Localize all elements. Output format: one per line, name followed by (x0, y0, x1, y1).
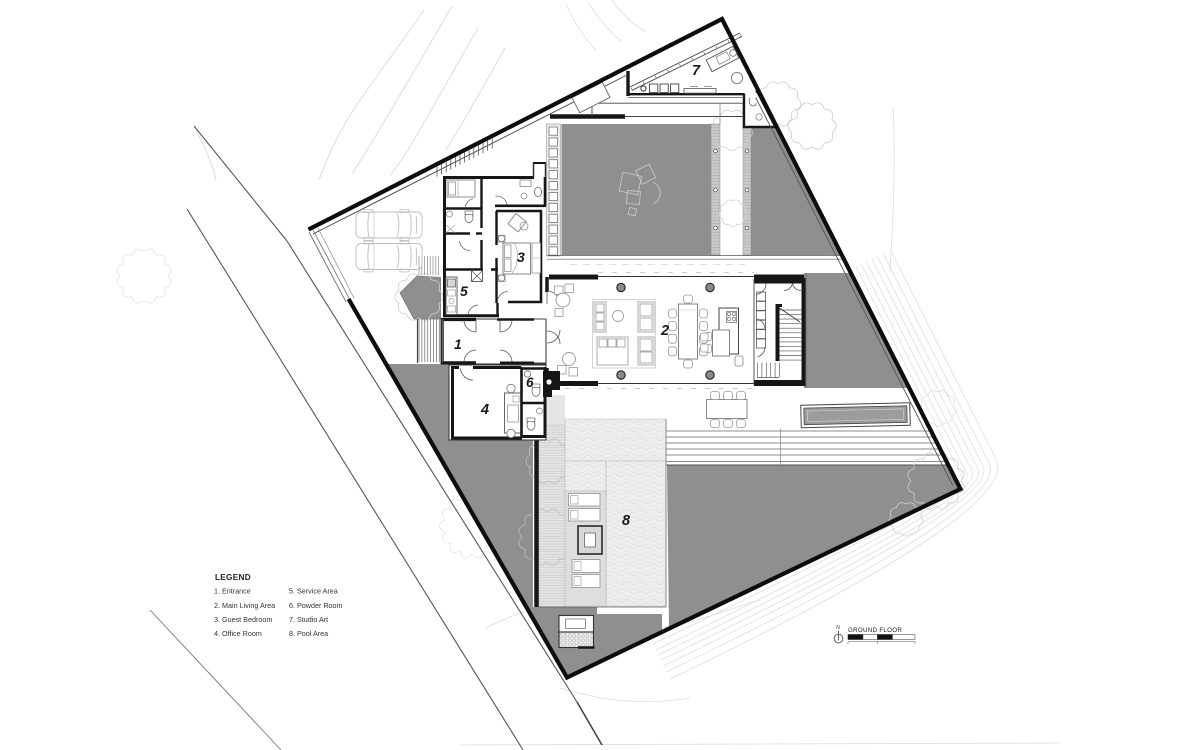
svg-text:5: 5 (460, 283, 468, 299)
svg-text:LEGEND: LEGEND (215, 573, 251, 582)
svg-text:6. Powder Room: 6. Powder Room (289, 601, 343, 610)
svg-text:7: 7 (692, 63, 701, 79)
svg-text:6: 6 (526, 375, 534, 390)
svg-text:3: 3 (517, 249, 525, 265)
svg-text:8: 8 (622, 513, 631, 529)
svg-text:8. Pool Area: 8. Pool Area (289, 629, 328, 638)
svg-text:7. Studio Art: 7. Studio Art (289, 615, 328, 624)
svg-text:5. Service Area: 5. Service Area (289, 587, 338, 596)
svg-text:2. Main Living Area: 2. Main Living Area (214, 601, 275, 610)
svg-text:3. Guest Bedroom: 3. Guest Bedroom (214, 615, 272, 624)
svg-text:4: 4 (480, 402, 489, 418)
svg-text:2: 2 (660, 323, 669, 339)
svg-text:1: 1 (454, 336, 462, 352)
svg-text:GROUND FLOOR: GROUND FLOOR (848, 627, 902, 634)
svg-text:1. Entrance: 1. Entrance (214, 587, 251, 596)
svg-text:N: N (836, 625, 840, 631)
svg-text:4. Office Room: 4. Office Room (214, 629, 262, 638)
